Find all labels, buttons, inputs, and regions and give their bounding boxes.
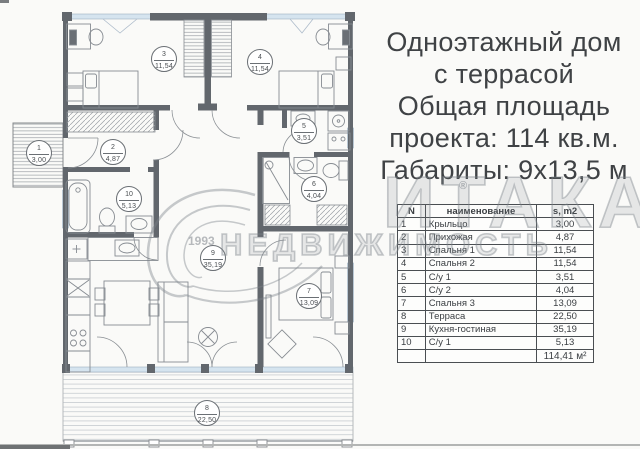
room-area: 13,09 bbox=[297, 298, 321, 307]
room-number: 3 bbox=[154, 47, 174, 61]
room-label-9: 935,19 bbox=[200, 245, 226, 271]
table-header-row: N наименование s, m2 bbox=[398, 205, 594, 218]
boiler-unit bbox=[66, 239, 87, 259]
room-number: 4 bbox=[250, 50, 270, 64]
room-number: 10 bbox=[119, 187, 139, 201]
table-row: 9Кухня-гостиная35,19 bbox=[398, 323, 594, 336]
title-line: Габариты: 9х13,5 м bbox=[372, 154, 636, 186]
title-line: Общая площадь bbox=[372, 90, 636, 122]
room-area: 35,19 bbox=[201, 260, 225, 269]
header-cell-name: наименование bbox=[425, 205, 536, 218]
table-row: 10С/у 15,13 bbox=[398, 336, 594, 349]
table-row: 4Спальня 211,54 bbox=[398, 257, 594, 270]
room-area: 3,00 bbox=[27, 155, 51, 164]
total-area: 114,41 м² bbox=[537, 350, 594, 363]
room-area: 4,04 bbox=[302, 191, 326, 200]
room-area: 11,54 bbox=[152, 61, 176, 70]
room-area-table: N наименование s, m2 1Крыльцо3,00 2Прихо… bbox=[397, 204, 594, 363]
room-label-2: 24,87 bbox=[100, 139, 126, 165]
table-row: 8Терраса22,50 bbox=[398, 310, 594, 323]
room-label-4: 411,54 bbox=[247, 49, 273, 75]
table-row: 3Спальня 111,54 bbox=[398, 244, 594, 257]
title-line: проекта: 114 кв.м. bbox=[372, 122, 636, 154]
dining-table bbox=[95, 281, 159, 325]
room-area: 4,87 bbox=[101, 154, 125, 163]
kitchen-counter bbox=[66, 238, 158, 373]
room-area: 5,13 bbox=[117, 201, 141, 210]
bedroom4-furniture bbox=[279, 24, 353, 108]
header-cell-num: N bbox=[398, 205, 426, 218]
room-label-10: 105,13 bbox=[116, 186, 142, 212]
room-label-3: 311,54 bbox=[151, 46, 177, 72]
room-number: 7 bbox=[299, 284, 319, 298]
room-label-6: 64,04 bbox=[301, 176, 327, 202]
room-number: 2 bbox=[103, 140, 123, 154]
photo-corner-mark bbox=[0, 0, 9, 3]
sofa bbox=[158, 282, 188, 362]
room-number: 1 bbox=[29, 141, 49, 155]
table-row: 6С/у 24,04 bbox=[398, 284, 594, 297]
room-number: 6 bbox=[304, 177, 324, 191]
project-title: Одноэтажный дом с террасой Общая площадь… bbox=[372, 26, 636, 186]
room-label-7: 713,09 bbox=[296, 283, 322, 309]
table-row: 1Крыльцо3,00 bbox=[398, 218, 594, 231]
room-area: 22,50 bbox=[195, 415, 219, 424]
table-total-row: 114,41 м² bbox=[398, 350, 594, 363]
bedroom3-furniture bbox=[67, 24, 139, 108]
room-label-1: 13,00 bbox=[26, 140, 52, 166]
title-line: с террасой bbox=[372, 58, 636, 90]
table-row: 5С/у 13,51 bbox=[398, 270, 594, 283]
floor-plan-drawing bbox=[0, 0, 375, 449]
table-row: 2Прихожая4,87 bbox=[398, 231, 594, 244]
photo-bottom-edge-dark bbox=[0, 445, 70, 449]
room-number: 5 bbox=[294, 119, 314, 133]
plan-sheet: 13,00 24,87 311,54 411,54 53,51 64,04 71… bbox=[0, 0, 640, 449]
room-number: 9 bbox=[203, 246, 223, 260]
table-row: 7Спальня 313,09 bbox=[398, 297, 594, 310]
room-label-8: 822,50 bbox=[194, 400, 220, 426]
room-number: 8 bbox=[197, 401, 217, 415]
round-table bbox=[199, 328, 218, 347]
room-area: 3,51 bbox=[292, 133, 316, 142]
room-area: 11,54 bbox=[248, 64, 272, 73]
room-label-5: 53,51 bbox=[291, 118, 317, 144]
title-line: Одноэтажный дом bbox=[372, 26, 636, 58]
photo-bottom-edge bbox=[0, 444, 640, 446]
header-cell-area: s, m2 bbox=[537, 205, 594, 218]
